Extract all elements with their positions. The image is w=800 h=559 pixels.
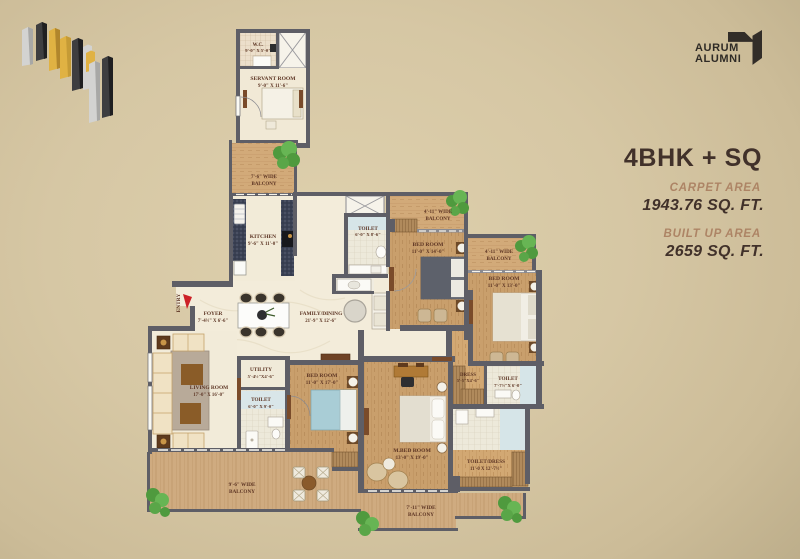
svg-text:9'-0" X 5'-0": 9'-0" X 5'-0": [245, 48, 271, 53]
svg-text:LIVING ROOM: LIVING ROOM: [190, 385, 229, 391]
svg-text:TOILET: TOILET: [251, 397, 271, 403]
svg-text:13'-0" X 19'-0": 13'-0" X 19'-0": [396, 456, 429, 461]
svg-text:9'-6" X 11'-0": 9'-6" X 11'-0": [248, 242, 278, 247]
svg-text:4'-11" WIDE: 4'-11" WIDE: [424, 210, 453, 215]
svg-text:UTILITY: UTILITY: [250, 367, 272, 373]
svg-text:BALCONY: BALCONY: [251, 182, 276, 187]
svg-text:TOILET/DRESS: TOILET/DRESS: [467, 459, 505, 465]
svg-text:4'-11" WIDE: 4'-11" WIDE: [485, 250, 514, 255]
svg-text:BALCONY: BALCONY: [408, 512, 434, 518]
svg-text:9'-0" X 11'-6": 9'-0" X 11'-6": [258, 84, 288, 89]
svg-text:BED ROOM: BED ROOM: [413, 242, 445, 248]
svg-text:BED ROOM: BED ROOM: [489, 276, 521, 282]
svg-text:BALCONY: BALCONY: [425, 217, 450, 222]
svg-text:7'-6" WIDE: 7'-6" WIDE: [251, 175, 278, 180]
svg-text:7'-7½"X 6'-0": 7'-7½"X 6'-0": [494, 383, 522, 388]
svg-text:FAMILY/DINING: FAMILY/DINING: [300, 311, 343, 317]
svg-text:5'-4½"X4'-6": 5'-4½"X4'-6": [248, 374, 275, 379]
svg-text:11'-0" X 13'-0": 11'-0" X 13'-0": [488, 284, 521, 289]
svg-text:7'-11" WIDE: 7'-11" WIDE: [406, 505, 436, 511]
svg-text:9'-6" WIDE: 9'-6" WIDE: [229, 482, 256, 488]
svg-text:SERVANT ROOM: SERVANT ROOM: [250, 76, 296, 82]
svg-text:11'-0 X 12'-7½": 11'-0 X 12'-7½": [470, 467, 502, 472]
svg-text:6'-0" X 8'-6": 6'-0" X 8'-6": [355, 232, 381, 237]
svg-text:M.BED ROOM: M.BED ROOM: [393, 448, 431, 454]
svg-text:7'-4½" X 6'-6": 7'-4½" X 6'-6": [198, 319, 229, 324]
svg-text:BALCONY: BALCONY: [229, 489, 255, 495]
svg-text:FOYER: FOYER: [204, 311, 223, 317]
svg-text:ENTRY: ENTRY: [176, 294, 182, 313]
svg-text:11'-0" X 14'-0": 11'-0" X 14'-0": [412, 250, 445, 255]
svg-text:11'-0" X 17'-0": 11'-0" X 17'-0": [306, 381, 339, 386]
svg-text:17'-0" X 16'-0": 17'-0" X 16'-0": [193, 393, 225, 398]
svg-text:21'-9" X 12'-6": 21'-9" X 12'-6": [305, 319, 337, 324]
svg-text:BED ROOM: BED ROOM: [307, 373, 339, 379]
svg-text:KITCHEN: KITCHEN: [250, 234, 276, 240]
svg-text:BALCONY: BALCONY: [486, 257, 511, 262]
svg-text:TOILET: TOILET: [498, 376, 518, 382]
svg-text:5'-5"X4'-6": 5'-5"X4'-6": [457, 378, 479, 383]
svg-text:6'-0" X 9'-0": 6'-0" X 9'-0": [248, 404, 274, 409]
